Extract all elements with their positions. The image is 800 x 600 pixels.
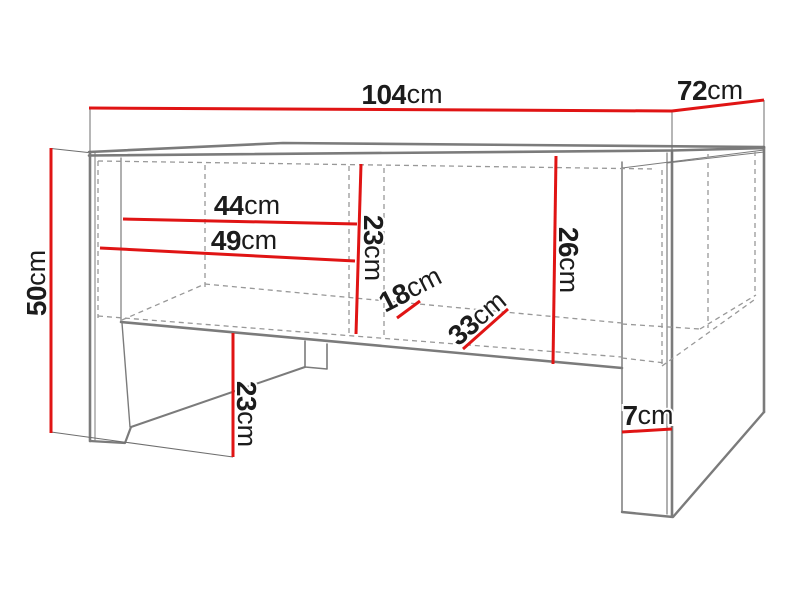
dimension-label-inner-width-44: 44cm	[214, 190, 280, 221]
dimension-label-top-depth: 72cm	[677, 75, 743, 106]
top-panel-underside-edge	[622, 150, 764, 168]
right-panel-top-inner-edge	[667, 152, 764, 163]
top-panel-front-edge	[89, 148, 764, 156]
shelf-back-edge-hidden	[622, 324, 700, 329]
floor-recess-line	[131, 367, 305, 427]
left-leg-inner-lower-edge	[122, 323, 130, 427]
dimension-label-inner-width-49: 49cm	[211, 225, 277, 256]
inner-top-front-edge	[98, 161, 656, 169]
dimension-label-inner-height-26: 26cm	[554, 227, 585, 293]
dimension-label-leg-clearance-23: 23cm	[232, 381, 263, 447]
diagram-svg: 104cm72cm50cm44cm49cm23cm26cm18cm33cm23c…	[0, 0, 800, 600]
shelf-front-edge-hidden	[622, 358, 665, 363]
dimension-label-shelf-depth-33: 33cm	[442, 285, 513, 351]
shelf-top-front-edge	[98, 316, 622, 357]
dimension-label-foot-height-7: 7cm	[622, 400, 673, 431]
extension-50-top	[51, 149, 88, 153]
hidden-edges	[98, 151, 756, 367]
dimension-label-top-width: 104cm	[361, 79, 442, 110]
dimension-diagram: 104cm72cm50cm44cm49cm23cm26cm18cm33cm23c…	[0, 0, 800, 600]
shelf-left-receding-edge	[122, 284, 205, 320]
furniture-outline	[89, 143, 764, 517]
middle-foot	[305, 341, 327, 369]
dimension-labels: 104cm72cm50cm44cm49cm23cm26cm18cm33cm23c…	[21, 75, 744, 448]
dimension-label-overall-height: 50cm	[21, 250, 52, 316]
shelf-front-edge	[121, 322, 622, 368]
dimension-label-inner-height-23: 23cm	[359, 215, 390, 281]
extension-floor-line	[51, 432, 233, 457]
